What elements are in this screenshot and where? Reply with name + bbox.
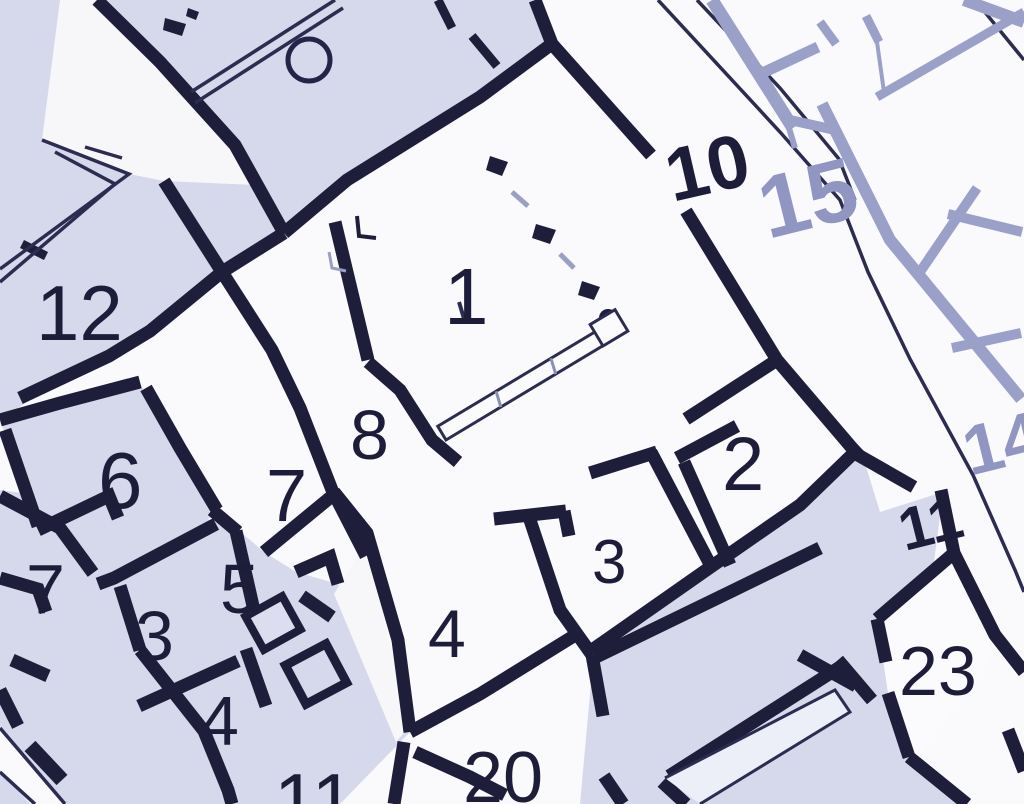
svg-text:3: 3 xyxy=(592,528,626,597)
svg-text:4: 4 xyxy=(200,682,239,760)
svg-text:4: 4 xyxy=(428,596,466,672)
svg-text:7: 7 xyxy=(26,550,65,628)
svg-text:6: 6 xyxy=(98,436,143,525)
svg-text:8: 8 xyxy=(350,396,389,474)
svg-text:23: 23 xyxy=(899,632,977,710)
svg-text:5: 5 xyxy=(220,550,259,628)
svg-text:2: 2 xyxy=(722,422,764,507)
svg-text:12: 12 xyxy=(36,269,123,357)
svg-text:3: 3 xyxy=(135,597,174,675)
svg-text:20: 20 xyxy=(463,738,543,804)
svg-text:1: 1 xyxy=(444,252,489,341)
svg-text:7: 7 xyxy=(266,454,307,537)
svg-text:11: 11 xyxy=(274,757,355,804)
